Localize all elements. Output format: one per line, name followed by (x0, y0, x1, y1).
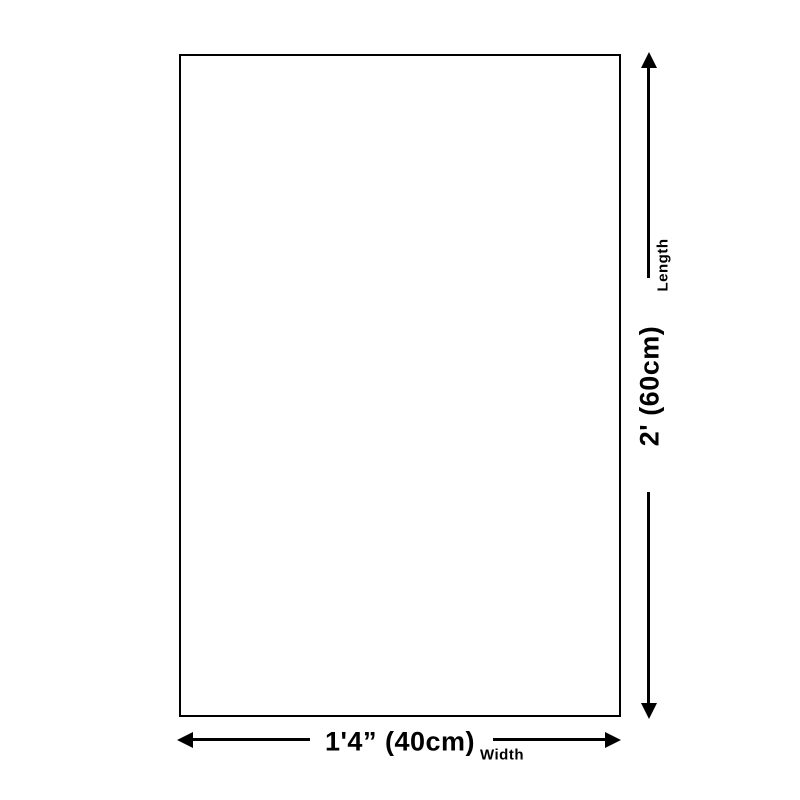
width-dimension-line-right (493, 738, 606, 741)
length-label: Length (656, 239, 671, 292)
dimension-diagram: 2' (60cm) Length 1'4” (40cm) Width (0, 0, 800, 800)
length-value: 2' (60cm) (637, 326, 664, 446)
arrow-down-icon (641, 703, 657, 719)
arrow-right-icon (605, 732, 621, 748)
length-dimension-line-bottom (647, 492, 650, 705)
length-dimension-line-top (647, 64, 650, 278)
product-outline (179, 54, 621, 717)
width-label: Width (480, 748, 524, 763)
width-dimension-line-left (191, 738, 310, 741)
width-value: 1'4” (40cm) (325, 729, 475, 756)
